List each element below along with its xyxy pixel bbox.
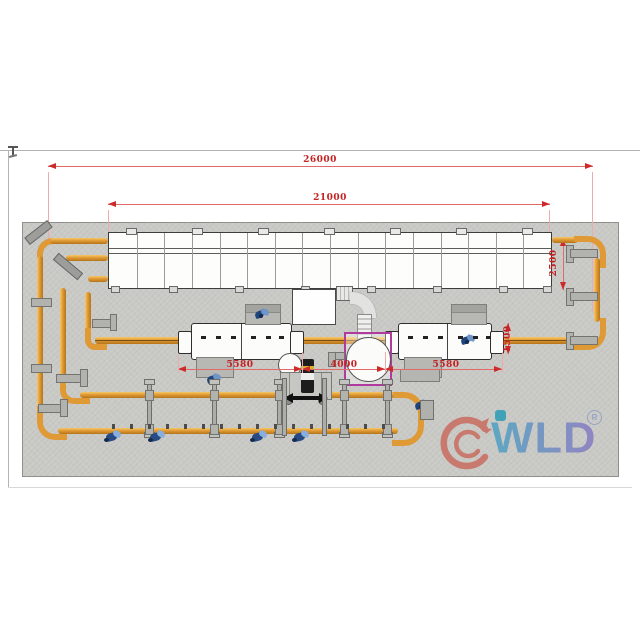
dim-line-26000 <box>48 166 593 167</box>
conveyor-panel-divider <box>192 233 193 288</box>
spray-nozzle-tick <box>166 424 169 429</box>
left-machine-body <box>191 323 292 360</box>
ext-line <box>385 352 386 373</box>
conveyor-panel-divider <box>441 233 442 288</box>
spray-nozzle-tick <box>256 424 259 429</box>
registered-mark-icon: R <box>587 410 602 425</box>
post-pipe-clamp <box>383 390 392 401</box>
machine-pipe-dash <box>486 336 491 339</box>
ext-line <box>108 210 109 232</box>
dim-arrow-right-icon <box>585 163 593 169</box>
conveyor-top-tab <box>258 228 269 235</box>
conveyor-foot <box>499 286 508 293</box>
conveyor-foot <box>111 286 120 293</box>
spray-nozzle-tick <box>274 424 277 429</box>
ext-line <box>549 210 550 232</box>
machine-pipe-dash <box>473 336 478 339</box>
dim-label-oven-width: 2500 <box>549 242 559 284</box>
right-machine-body <box>398 323 492 360</box>
travel-arrow <box>292 396 320 400</box>
machine-pipe-dash <box>266 336 271 339</box>
conveyor-top-tab <box>456 228 467 235</box>
dim-arrow-left-icon <box>108 201 116 207</box>
pipe-stub-low <box>88 276 108 282</box>
conveyor-top-tab <box>324 228 335 235</box>
conveyor-panel-divider <box>164 233 165 288</box>
frame-left-border <box>8 150 9 488</box>
frame-bottom-border <box>8 487 632 488</box>
pipe-right-vertical <box>594 258 600 322</box>
pipe-left-outer <box>37 256 43 411</box>
machine-pipe-dash <box>408 336 413 339</box>
conveyor-top-tab <box>522 228 533 235</box>
dim-line-21000 <box>108 204 550 205</box>
control-cabinet <box>292 289 336 325</box>
cart-leg <box>282 378 287 436</box>
conveyor-foot <box>169 286 178 293</box>
conveyor-panel-divider <box>302 233 303 288</box>
machine-pipe-dash <box>423 336 428 339</box>
conveyor-foot <box>367 286 376 293</box>
logo-text: WLD <box>491 416 596 460</box>
dim-label-machine-offset: 1500 <box>503 319 513 359</box>
dim-arrow-right-icon <box>377 366 385 372</box>
pipe-stub-top <box>50 238 108 244</box>
spray-nozzle-tick <box>112 424 115 429</box>
post-pipe-clamp <box>210 390 219 401</box>
dim-arrow-right-icon <box>294 366 302 372</box>
layout-drawing: 26000 21000 2500 <box>0 0 640 640</box>
post-cap <box>144 379 155 385</box>
post-cap <box>209 379 220 385</box>
conveyor-panel-divider <box>137 233 138 288</box>
ext-line <box>302 352 303 373</box>
conveyor-foot <box>433 286 442 293</box>
conveyor-panel-divider <box>330 233 331 288</box>
right-machine-top-unit <box>451 304 487 325</box>
spray-nozzle-tick <box>382 424 385 429</box>
post-cap <box>339 379 350 385</box>
machine-pipe-dash <box>231 336 236 339</box>
conveyor-foot <box>235 286 244 293</box>
dim-arrow-left-icon <box>385 366 393 372</box>
spray-nozzle-tick <box>148 424 151 429</box>
dragon-circle-icon <box>435 412 493 472</box>
datum-mark-icon <box>6 144 22 160</box>
brand-logo: WLD R <box>435 402 615 474</box>
conveyor-panel-divider <box>275 233 276 288</box>
conveyor-top-tab <box>192 228 203 235</box>
conveyor-panel-divider <box>247 233 248 288</box>
post-pipe-clamp <box>210 424 219 435</box>
pipe-bracket-plate <box>60 399 68 417</box>
step-plate <box>400 369 440 382</box>
u-turn-bracket <box>420 400 434 420</box>
spray-nozzle-tick <box>364 424 367 429</box>
fan-impeller-icon <box>254 308 270 321</box>
spray-nozzle-tick <box>130 424 133 429</box>
frame-top-border <box>0 150 640 151</box>
conveyor-foot <box>543 286 552 293</box>
dim-label-center-span: 4000 <box>326 360 362 370</box>
machine-pipe-dash <box>458 336 463 339</box>
sprayer-unit-icon <box>104 430 122 443</box>
pipe-bracket <box>570 336 598 345</box>
sprayer-unit-icon <box>292 430 310 443</box>
pipe-bracket <box>570 292 598 301</box>
post-pipe-clamp <box>340 390 349 401</box>
pipe-bracket-plate <box>110 314 117 331</box>
dim-label-oven-length: 21000 <box>300 193 360 203</box>
dim-arrow-right-icon <box>542 201 550 207</box>
pipe-bracket-plate <box>80 369 88 387</box>
spray-nozzle-tick <box>238 424 241 429</box>
conveyor-top-tab <box>126 228 137 235</box>
conveyor-panel-divider <box>385 233 386 288</box>
spray-nozzle-tick <box>346 424 349 429</box>
spray-nozzle-tick <box>220 424 223 429</box>
drying-oven-conveyor <box>108 232 552 289</box>
machine-pipe-dash <box>216 336 221 339</box>
conveyor-panel-divider <box>523 233 524 288</box>
pipe-bracket <box>570 249 598 258</box>
dim-arrow-right-icon <box>494 366 502 372</box>
sprayer-unit-icon <box>148 430 166 443</box>
cart-leg <box>322 378 327 436</box>
spray-nozzle-tick <box>310 424 313 429</box>
left-machine-end-cap <box>290 331 304 354</box>
conveyor-panel-divider <box>220 233 221 288</box>
machine-pipe-dash <box>279 336 284 339</box>
dim-arrow-left-icon <box>178 366 186 372</box>
right-machine-end-cap <box>490 331 504 354</box>
dim-arrow-left-icon <box>48 163 56 169</box>
dim-label-left-machine: 5580 <box>222 360 258 370</box>
spray-nozzle-tick <box>292 424 295 429</box>
machine-pipe-dash <box>201 336 206 339</box>
dim-label-right-machine: 5580 <box>428 360 464 370</box>
pipe-left-inner <box>60 288 66 380</box>
post-pipe-clamp <box>145 390 154 401</box>
conveyor-panel-divider <box>413 233 414 288</box>
spray-nozzle-tick <box>202 424 205 429</box>
post-cap <box>382 379 393 385</box>
machine-pipe-dash <box>251 336 256 339</box>
spray-nozzle-tick <box>184 424 187 429</box>
conveyor-panel-divider <box>496 233 497 288</box>
sprayer-unit-icon <box>250 430 268 443</box>
pipe-stub-mid <box>66 255 108 261</box>
dim-label-overall-length: 26000 <box>290 155 350 165</box>
machine-pipe-dash <box>438 336 443 339</box>
pipe-clamp <box>31 364 52 373</box>
ext-line <box>178 355 179 373</box>
pipe-clamp <box>31 298 52 307</box>
left-machine-end-cap <box>178 331 192 354</box>
conveyor-panel-divider <box>468 233 469 288</box>
conveyor-panel-divider <box>358 233 359 288</box>
dim-arrow-left-icon <box>302 366 310 372</box>
conveyor-top-tab <box>390 228 401 235</box>
spray-nozzle-tick <box>328 424 331 429</box>
